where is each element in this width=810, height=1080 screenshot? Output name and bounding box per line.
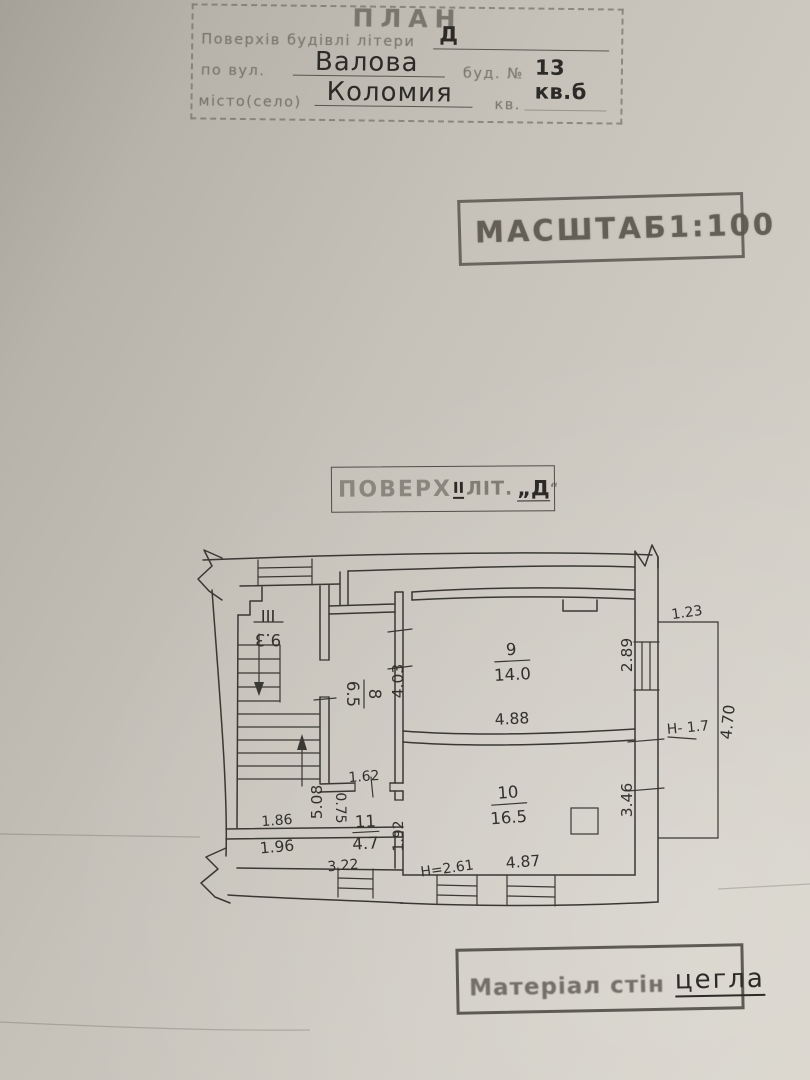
dim-room11-right: 1.92: [391, 820, 407, 851]
wall-bottom-left-outer: [228, 895, 403, 903]
wall-room9-top-outer: [412, 588, 634, 592]
wall-stair-room8: [320, 585, 329, 783]
wall-top-inner-left: [240, 584, 340, 586]
room-label-8: 8 6.5: [343, 680, 384, 708]
wall-room9-room10: [403, 729, 635, 745]
wall-shaft: [340, 571, 348, 605]
dim-room10-height-note: Н=2.61: [420, 857, 475, 880]
dim-room10-width: 4.87: [505, 852, 541, 872]
wall-step-corner: [238, 587, 262, 615]
room-area: 16.5: [490, 807, 528, 829]
wall-left-outer: [212, 590, 226, 856]
fraction-bar: [492, 803, 527, 805]
fraction-bar: [495, 660, 530, 662]
window-bottom-3: [507, 875, 555, 906]
stair-arrow-up-head: [297, 734, 307, 750]
room-area: 6.5: [343, 681, 362, 707]
scanned-plan-page: ПЛАН Поверхів будівлі літери Д по вул. В…: [0, 0, 810, 1080]
room-number: 10: [497, 782, 519, 802]
stair-arrow-down-head: [254, 682, 264, 696]
wall-bottom-right-outer: [400, 902, 658, 906]
dim-room9-width: 4.88: [494, 709, 529, 729]
crease-line: [0, 1022, 310, 1030]
dim-landing-186: 1.86: [261, 812, 293, 830]
room-area: 4.7: [352, 833, 379, 853]
room-area: 9.3: [255, 630, 281, 649]
dim-corridor-196: 1.96: [259, 837, 295, 858]
dim-hall-075: 0.75: [332, 792, 348, 823]
room-label-stairwell: ІІІ 9.3: [254, 606, 283, 649]
break-symbol-top-left: [198, 550, 222, 600]
room-label-11: 11 4.7: [351, 811, 380, 853]
room-number: 8: [365, 689, 384, 700]
stairs: [238, 634, 320, 786]
chimney-notch: [563, 600, 597, 611]
room-number: 9: [505, 640, 516, 660]
window-bottom-2: [437, 875, 477, 905]
dim-room9-right: 2.89: [618, 638, 636, 673]
room-label-10: 10 16.5: [488, 782, 528, 828]
stair-treads-lower: [238, 714, 320, 779]
floor-plan: ІІІ 9.3 8 6.5 9 14.0 10 16.5 11 4.7 4.03…: [0, 0, 810, 1080]
room-area: 14.0: [494, 664, 532, 685]
wall-bottom-left-inner: [237, 868, 403, 870]
dim-balcony-height-note: Н- 1.7: [666, 718, 710, 738]
room-number: 11: [354, 811, 376, 831]
wall-room9-top-inner: [412, 597, 634, 600]
wall-top-inner-right: [348, 566, 634, 571]
door-jambs-stair: [320, 660, 329, 697]
dim-hall-162: 1.62: [348, 768, 380, 786]
window-right: [634, 642, 659, 690]
fraction-bar: [353, 831, 379, 832]
dim-room8-height: 4.03: [389, 664, 407, 699]
break-symbol-top-right: [635, 545, 658, 568]
crease-line: [718, 884, 810, 889]
dim-underline: [668, 737, 696, 739]
wall-top-outer: [203, 553, 652, 560]
stove: [571, 808, 598, 834]
wall-left-inner: [237, 615, 238, 828]
dim-stair-508: 5.08: [308, 785, 326, 820]
dim-corridor-322: 3.22: [327, 857, 359, 876]
room-label-9: 9 14.0: [492, 639, 531, 685]
window-top: [258, 559, 312, 586]
dim-balcony-length: 4.70: [717, 704, 739, 740]
dim-balcony-width: 1.23: [670, 603, 703, 623]
dim-room10-right: 3.46: [618, 783, 636, 818]
crease-line: [0, 834, 200, 837]
